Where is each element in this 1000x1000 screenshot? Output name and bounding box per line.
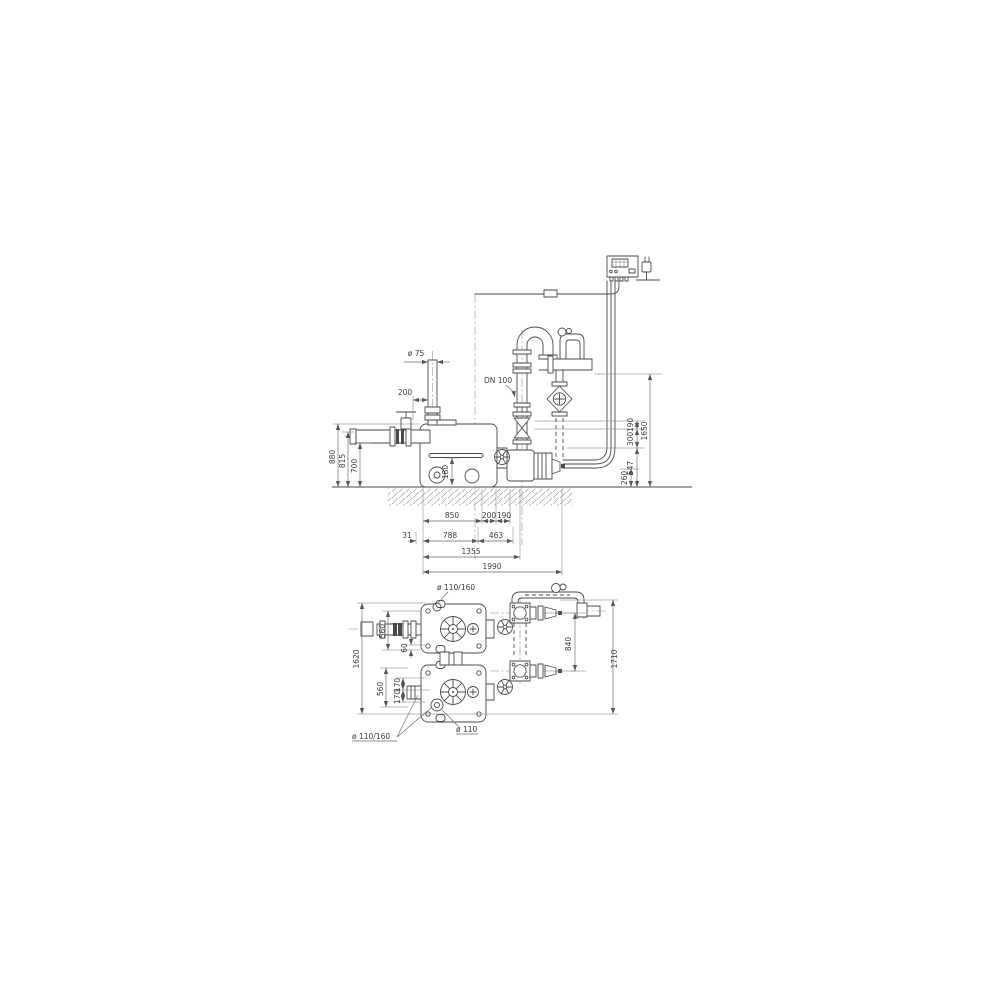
dim-1710: 1710 [610,649,619,668]
dim-1650: 1650 [640,421,649,440]
label-port-top: ø 110/160 [437,583,475,592]
plan-pump-2 [407,662,486,723]
dim-vent: ø 75 200 [398,349,450,420]
pump-motor [495,448,566,481]
dim-560-top: 560 [378,624,387,639]
label-port-side: ø 110/160 [352,732,390,741]
dim-190-right: 190 [626,418,635,433]
vent-check-valve [547,370,572,458]
dim-700: 700 [350,459,359,474]
control-box [607,256,638,281]
dim-200-bottom: 200 [482,511,497,520]
discharge-shutoff-valve [513,403,531,444]
dim-60: 60 [400,643,409,653]
plan-inlet-pipe [361,621,421,638]
dn100-text: DN 100 [484,376,512,385]
side-view: 880 815 700 180 ø 75 200 DN 100 190 300 [328,256,692,575]
dim-200-offset: 200 [398,388,413,397]
plan-view: 1620 560 60 560 170 170 840 1710 ø 110/1… [349,583,619,741]
dim-560-bottom: 560 [376,682,385,697]
label-drain-port: ø 110 [456,725,478,734]
dim-850: 850 [445,511,460,520]
drawing-canvas: 880 815 700 180 ø 75 200 DN 100 190 300 [0,0,1000,1000]
dim-170-b: 170 [393,690,402,705]
plan-pump-1 [421,601,486,654]
dim-vent-diameter: ø 75 [408,349,425,358]
collecting-tank [420,420,497,487]
dim-1620: 1620 [352,649,361,668]
dim-260: 260 [620,471,629,486]
ground [332,487,692,506]
dim-840: 840 [564,637,573,652]
dim-190-bottom: 190 [497,511,512,520]
plan-pump-connectors [440,652,462,665]
dim-815: 815 [338,454,347,469]
plan-manifold [486,603,562,700]
dim-180: 180 [441,465,450,480]
technical-drawing: 880 815 700 180 ø 75 200 DN 100 190 300 [0,0,1000,1000]
dim-880: 880 [328,450,337,465]
dim-1990: 1990 [482,562,501,571]
side-inlet-stub [407,686,421,699]
dim-300: 300 [626,432,635,447]
power-plug-icon [636,257,660,280]
dim-788: 788 [443,531,458,540]
gauge-loop [558,328,584,359]
dim-31: 31 [402,531,412,540]
dim-463: 463 [489,531,504,540]
dim-1355: 1355 [461,547,480,556]
label-dn100: DN 100 [484,376,515,397]
